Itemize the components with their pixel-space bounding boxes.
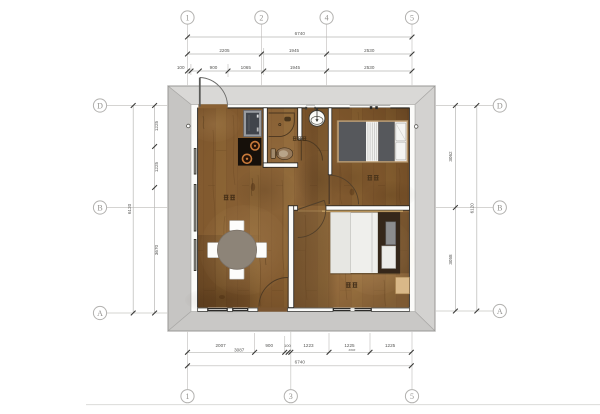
svg-text:D: D — [497, 101, 503, 110]
svg-text:5: 5 — [410, 13, 414, 22]
svg-text:1: 1 — [186, 13, 190, 22]
svg-text:1945: 1945 — [290, 65, 301, 70]
svg-text:3670: 3670 — [154, 244, 159, 255]
svg-text:6120: 6120 — [127, 203, 132, 214]
svg-text:1225: 1225 — [154, 120, 159, 131]
svg-text:900: 900 — [265, 343, 273, 348]
svg-text:100: 100 — [177, 65, 185, 70]
svg-text:6120: 6120 — [469, 203, 474, 214]
svg-text:2: 2 — [259, 13, 263, 22]
svg-text:3087: 3087 — [234, 347, 245, 352]
svg-text:2205: 2205 — [219, 48, 230, 53]
svg-text:B: B — [497, 203, 502, 212]
svg-text:1945: 1945 — [289, 48, 300, 53]
svg-text:1065: 1065 — [241, 65, 252, 70]
svg-text:2530: 2530 — [364, 65, 375, 70]
svg-text:3062: 3062 — [448, 151, 453, 162]
svg-text:D: D — [97, 101, 103, 110]
svg-text:####: #### — [349, 348, 356, 352]
svg-text:B: B — [97, 203, 102, 212]
svg-text:2530: 2530 — [364, 48, 375, 53]
svg-text:A: A — [497, 307, 503, 316]
svg-text:A: A — [97, 309, 103, 318]
svg-text:1225: 1225 — [154, 161, 159, 172]
svg-text:4: 4 — [325, 13, 329, 22]
svg-text:1225: 1225 — [385, 343, 396, 348]
svg-text:900: 900 — [210, 65, 218, 70]
svg-text:2007: 2007 — [215, 343, 226, 348]
svg-text:5: 5 — [410, 392, 414, 401]
svg-text:6740: 6740 — [295, 360, 306, 365]
svg-text:1: 1 — [186, 392, 190, 401]
svg-text:1223: 1223 — [303, 343, 314, 348]
svg-text:6740: 6740 — [295, 31, 306, 36]
svg-text:100: 100 — [284, 343, 291, 348]
svg-text:3058: 3058 — [448, 254, 453, 265]
svg-text:3: 3 — [289, 392, 293, 401]
